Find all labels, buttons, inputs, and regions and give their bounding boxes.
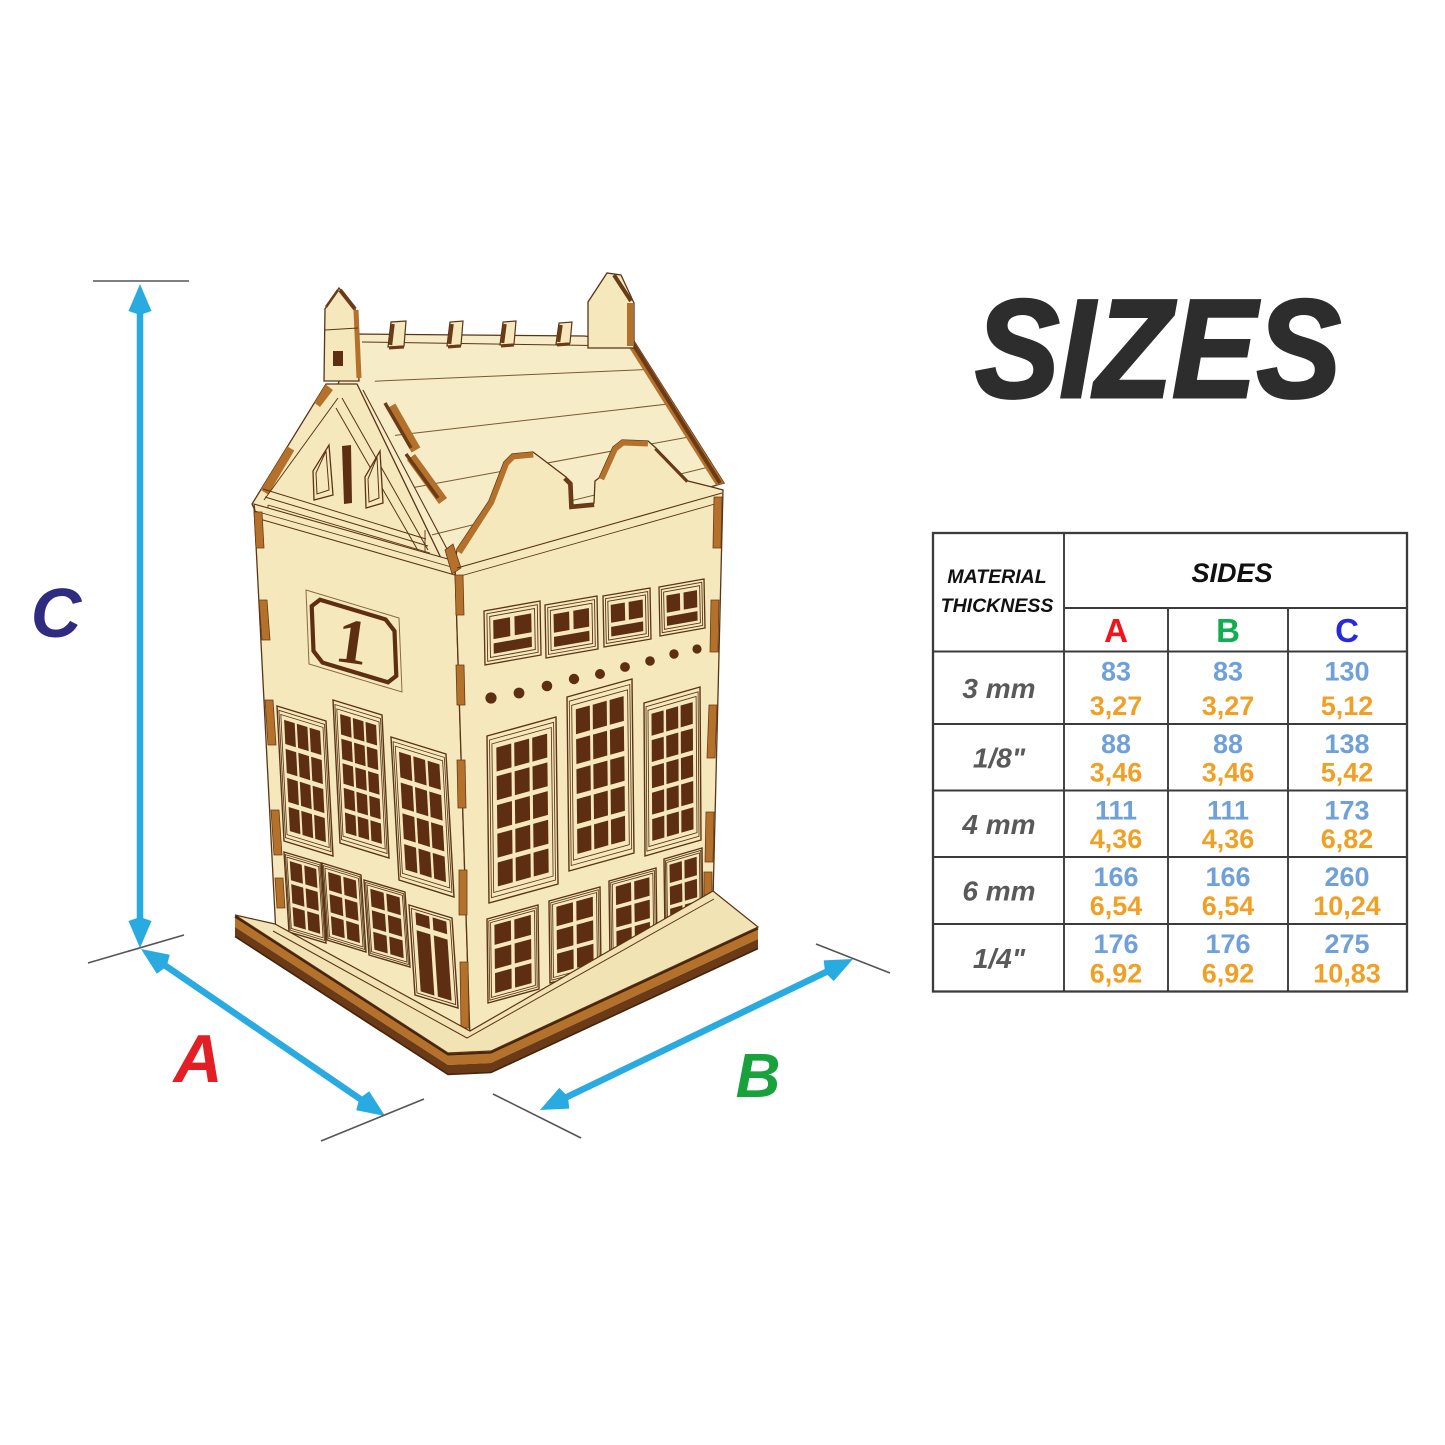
svg-text:6,54: 6,54 [1202,891,1255,921]
svg-text:6,92: 6,92 [1202,959,1255,989]
svg-text:88: 88 [1101,729,1131,759]
svg-text:1/4": 1/4" [973,943,1026,974]
svg-text:275: 275 [1324,929,1369,959]
svg-text:6,92: 6,92 [1090,959,1143,989]
svg-text:166: 166 [1205,862,1250,892]
svg-text:MATERIAL: MATERIAL [947,566,1046,588]
svg-text:3,27: 3,27 [1202,691,1255,721]
svg-text:1/8": 1/8" [973,742,1026,773]
svg-text:138: 138 [1324,729,1369,759]
svg-text:4,36: 4,36 [1202,824,1255,854]
svg-text:88: 88 [1213,729,1243,759]
svg-text:4 mm: 4 mm [961,809,1035,840]
svg-text:A: A [171,1021,222,1097]
svg-text:10,83: 10,83 [1313,959,1381,989]
svg-text:111: 111 [1095,796,1137,826]
svg-text:83: 83 [1213,657,1243,687]
svg-text:C: C [1335,612,1359,649]
svg-text:260: 260 [1324,862,1369,892]
svg-text:5,12: 5,12 [1321,691,1374,721]
svg-text:83: 83 [1101,657,1131,687]
svg-text:6 mm: 6 mm [962,876,1035,907]
svg-text:THICKNESS: THICKNESS [941,595,1054,617]
svg-text:176: 176 [1093,929,1138,959]
svg-text:SIDES: SIDES [1191,558,1272,588]
svg-text:B: B [1216,612,1240,649]
svg-text:3,46: 3,46 [1202,758,1255,788]
svg-text:B: B [736,1042,781,1111]
svg-text:10,24: 10,24 [1313,891,1381,921]
svg-text:3 mm: 3 mm [962,673,1035,704]
svg-text:4,36: 4,36 [1090,824,1143,854]
svg-text:6,82: 6,82 [1321,824,1374,854]
svg-text:173: 173 [1324,796,1369,826]
svg-text:3,46: 3,46 [1090,758,1143,788]
svg-text:6,54: 6,54 [1090,891,1143,921]
svg-text:130: 130 [1324,657,1369,687]
svg-text:A: A [1104,612,1128,649]
svg-text:176: 176 [1205,929,1250,959]
svg-text:111: 111 [1207,796,1249,826]
svg-text:166: 166 [1093,862,1138,892]
svg-text:C: C [31,574,83,652]
svg-text:SIZES: SIZES [975,270,1341,427]
svg-text:3,27: 3,27 [1090,691,1143,721]
svg-text:5,42: 5,42 [1321,758,1374,788]
